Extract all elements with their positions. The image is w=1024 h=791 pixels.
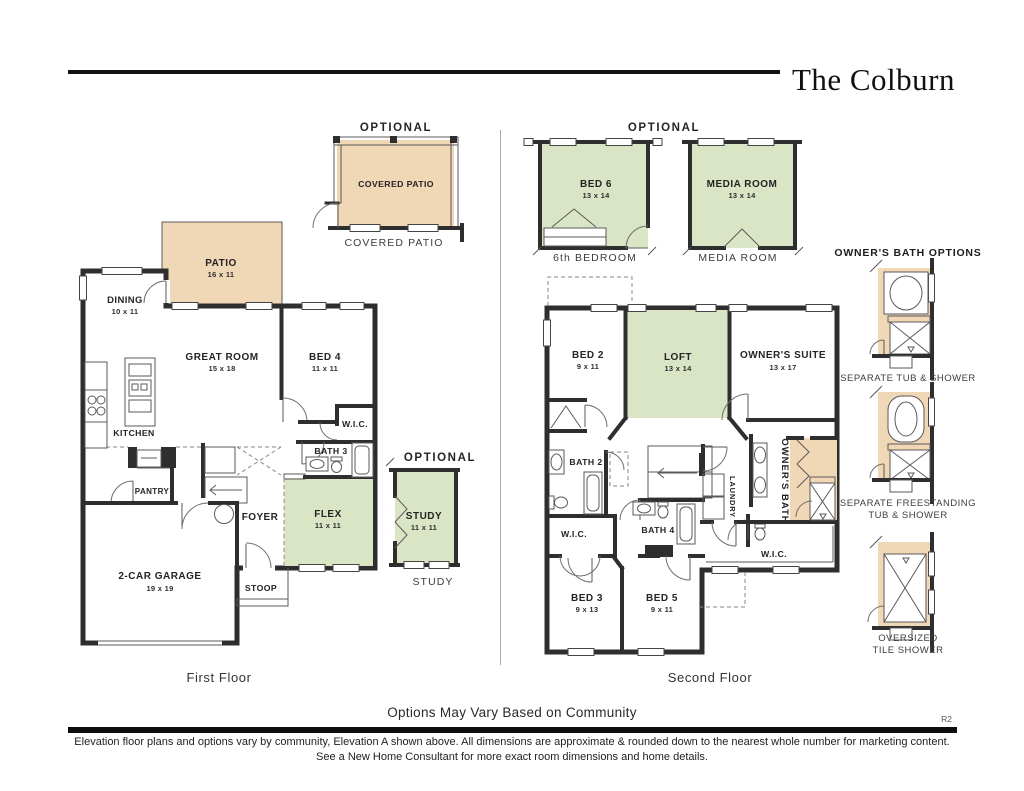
owners-suite-dims: 13 x 17 [769, 363, 796, 372]
owners-bath-options: OWNER'S BATH OPTIONS SEPARATE TUB & SHOW… [834, 247, 981, 656]
bed5-dims: 9 x 11 [651, 605, 673, 614]
garage-dims: 19 x 19 [146, 584, 173, 593]
footer-rule [68, 727, 957, 733]
bath-option-3: OVERSIZED TILE SHOWER [868, 534, 943, 656]
bed6-caption: 6th BEDROOM [553, 252, 637, 264]
patio-dims: 16 x 11 [208, 270, 235, 279]
bath2-label: BATH 2 [569, 457, 602, 467]
room-flex: FLEX 11 x 11 [284, 474, 375, 566]
revision-label: R2 [941, 714, 952, 724]
garage-label: 2-CAR GARAGE [118, 571, 201, 582]
disclaimer-line-2: See a New Home Consultant for more exact… [0, 751, 1024, 763]
wic-right-label: W.I.C. [761, 549, 787, 559]
owners-bath-label: OWNER'S BATH [779, 438, 790, 523]
great-room-dims: 15 x 18 [208, 364, 235, 373]
bath4-label: BATH 4 [641, 525, 674, 535]
bath-option-1-label: SEPARATE TUB & SHOWER [840, 373, 976, 384]
floorplan-page: The Colburn OPTIONAL [0, 0, 1024, 791]
media-room-dims: 13 x 14 [728, 191, 756, 200]
dining-dims: 10 x 11 [112, 307, 139, 316]
bath-option-3-label-line2: TILE SHOWER [873, 645, 944, 656]
options-note: Options May Vary Based on Community [0, 705, 1024, 720]
bath-options-title: OWNER'S BATH OPTIONS [834, 247, 981, 259]
covered-patio-caption: COVERED PATIO [344, 237, 443, 249]
laundry-label: LAUNDRY [728, 476, 737, 518]
bed6-label: BED 6 [580, 179, 612, 190]
bath-option-3-label-line1: OVERSIZED [878, 633, 937, 644]
covered-patio-room-label: COVERED PATIO [358, 179, 434, 189]
bath-option-2-label-line2: TUB & SHOWER [868, 510, 947, 521]
loft-label: LOFT [664, 352, 692, 363]
wic-left-label: W.I.C. [561, 529, 587, 539]
bed4-dims: 11 x 11 [312, 364, 338, 373]
room-patio: PATIO 16 x 11 [162, 222, 282, 306]
bed2-label: BED 2 [572, 350, 604, 361]
stoop-label: STOOP [245, 583, 277, 593]
bed6-dims: 13 x 14 [582, 191, 610, 200]
bed3-dims: 9 x 13 [576, 605, 599, 614]
bath-option-2: SEPARATE FREESTANDING TUB & SHOWER [840, 384, 976, 521]
first-floor-caption: First Floor [186, 670, 251, 685]
optional-label: OPTIONAL [628, 122, 700, 134]
bed6-option: BED 6 13 x 14 6th BEDROOM [524, 139, 662, 265]
disclaimer-line-1: Elevation floor plans and options vary b… [0, 736, 1024, 748]
study-caption: STUDY [412, 576, 453, 588]
dining-label: DINING [107, 295, 143, 306]
second-floor-caption: Second Floor [668, 670, 753, 685]
kitchen-label: KITCHEN [113, 428, 154, 438]
optional-label: OPTIONAL [404, 452, 476, 464]
door-arc [313, 203, 338, 228]
great-room-label: GREAT ROOM [185, 352, 258, 363]
first-floor-plan: OPTIONAL COVERED PATIO COVERED PATIO [80, 122, 477, 685]
bed5-label: BED 5 [646, 593, 678, 604]
water-heater-icon [215, 505, 234, 524]
owners-suite-label: OWNER'S SUITE [740, 350, 826, 361]
study-option: OPTIONAL STUDY 11 x 11 STUDY [386, 452, 476, 588]
flex-label: FLEX [314, 509, 342, 520]
patio-label: PATIO [205, 258, 237, 269]
flex-dims: 11 x 11 [315, 521, 341, 530]
second-floor-plan: OPTIONAL BED 6 13 x 14 6th BEDROOM [524, 122, 837, 685]
bed2-dims: 9 x 11 [577, 362, 599, 371]
study-label: STUDY [406, 511, 442, 522]
floorplan-canvas: OPTIONAL COVERED PATIO COVERED PATIO [0, 0, 1024, 791]
optional-label: OPTIONAL [360, 122, 432, 134]
covered-patio-option: OPTIONAL COVERED PATIO COVERED PATIO [313, 122, 462, 249]
media-room-caption: MEDIA ROOM [698, 252, 777, 264]
bath-option-1: SEPARATE TUB & SHOWER [840, 260, 976, 384]
study-dims: 11 x 11 [411, 523, 437, 532]
bath-option-2-label-line1: SEPARATE FREESTANDING [840, 498, 976, 509]
media-room-option: MEDIA ROOM 13 x 14 MEDIA ROOM [683, 139, 803, 265]
bed4-label: BED 4 [309, 352, 341, 363]
foyer-label: FOYER [242, 512, 279, 523]
pantry-label: PANTRY [135, 487, 170, 496]
media-room-label: MEDIA ROOM [707, 179, 778, 190]
wic-label: W.I.C. [342, 419, 368, 429]
bath3-label: BATH 3 [314, 446, 347, 456]
bed3-label: BED 3 [571, 593, 603, 604]
loft-dims: 13 x 14 [664, 364, 692, 373]
